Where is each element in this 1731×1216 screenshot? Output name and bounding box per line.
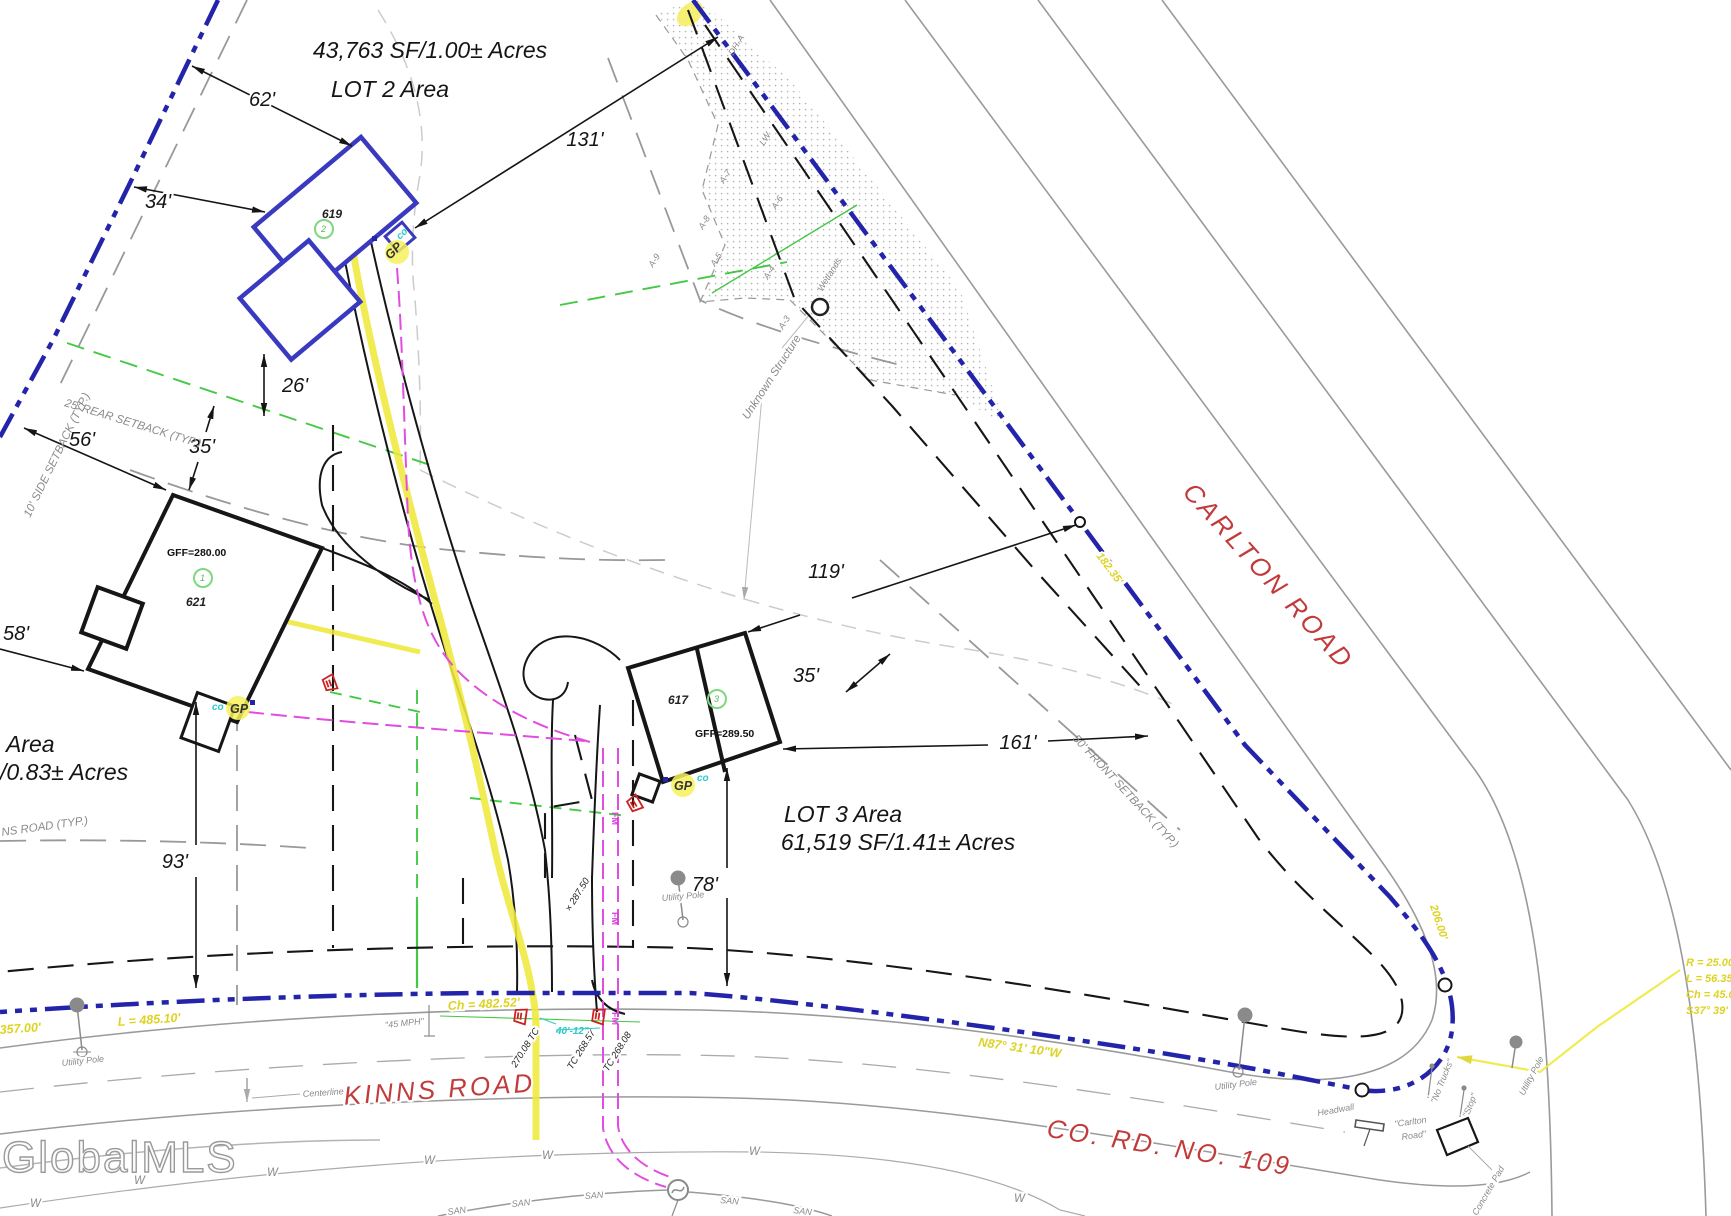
building-619-number: 619 bbox=[322, 207, 342, 221]
fm-double-e bbox=[618, 748, 670, 1177]
dim-161: 161' bbox=[999, 732, 1037, 754]
san-label: SAN bbox=[584, 1190, 604, 1201]
drive-east-edge bbox=[368, 228, 552, 992]
building-621-gff: GFF=280.00 bbox=[167, 547, 226, 559]
utility-pole-label: Utility Pole bbox=[1517, 1055, 1546, 1097]
dim-58-line bbox=[0, 649, 84, 671]
curve-line-2: L = 56.35' bbox=[1686, 973, 1731, 985]
dim-119: 119' bbox=[808, 561, 845, 583]
water-label: W bbox=[749, 1146, 761, 1158]
co-label: co bbox=[697, 773, 709, 784]
fm-label: FM bbox=[610, 1012, 620, 1025]
dim-131: 131' bbox=[566, 129, 604, 151]
watermark: GlobalMLS bbox=[2, 1133, 238, 1182]
curve-line-3: Ch = 45.00' bbox=[1686, 989, 1731, 1001]
drive-617-east bbox=[592, 705, 625, 1014]
survey-357: 357.00' bbox=[0, 1020, 42, 1037]
green-thin-road bbox=[440, 1016, 640, 1022]
site-plan-drawing: FM FM FM 619 2 GFF=280.00 1 621 617 3 GF… bbox=[0, 0, 1731, 1216]
utility-pole-label: Utility Pole bbox=[61, 1054, 104, 1068]
kinns-setback-label: NS ROAD (TYP.) bbox=[1, 815, 89, 839]
culvert-size-label: 40'-12" bbox=[555, 1026, 589, 1037]
dim-26: 26' bbox=[281, 375, 309, 397]
unknown-structure-leader-2 bbox=[744, 396, 762, 600]
survey-L485: L = 485.10' bbox=[117, 1011, 182, 1029]
dim-119-line bbox=[748, 525, 1076, 632]
survey-dist-2: 206.00' bbox=[1427, 902, 1450, 942]
lot2-circle-num: 2 bbox=[320, 224, 326, 234]
wetland-flag: A-3 bbox=[776, 314, 792, 332]
carlton-east-edge bbox=[905, 0, 1552, 1216]
centerline-leader bbox=[252, 1094, 300, 1098]
water-label: W bbox=[542, 1150, 554, 1162]
front-setback-carlton-line bbox=[880, 560, 1180, 830]
monument bbox=[1439, 979, 1452, 992]
utility-pole bbox=[1510, 1036, 1522, 1068]
carlton-shoulder-2 bbox=[1162, 0, 1731, 770]
kinns-setback-line bbox=[0, 840, 310, 848]
building-617-gff: GFF=289.50 bbox=[695, 728, 754, 740]
lot2-name: LOT 2 Area bbox=[331, 76, 449, 102]
survey-bearing: N87° 31' 10"W bbox=[978, 1035, 1064, 1061]
fm-label: FM bbox=[610, 912, 620, 925]
side-setback-label: 10' SIDE SETBACK (TYP.) bbox=[22, 391, 93, 519]
co-label: co bbox=[212, 702, 224, 713]
san-label: SAN bbox=[793, 1205, 813, 1216]
co-rd-109-name: CO. RD. NO. 109 bbox=[1045, 1113, 1294, 1181]
speed-sign bbox=[424, 1005, 435, 1036]
front-setback-label: 50' FRONT SETBACK (TYP.) bbox=[1070, 733, 1181, 851]
service-dot bbox=[250, 700, 255, 705]
carlton-road-sign-label-1: "Carlton bbox=[1394, 1115, 1427, 1129]
culvert-end-section bbox=[322, 674, 337, 692]
water-label: W bbox=[424, 1155, 436, 1167]
dim-93: 93' bbox=[162, 851, 189, 873]
lot-area-labels: 43,763 SF/1.00± Acres LOT 2 Area LOT 3 A… bbox=[0, 37, 1016, 855]
speed-limit-label: "45 MPH" bbox=[384, 1016, 425, 1030]
survey-dist-1: 182.35' bbox=[1094, 551, 1126, 587]
dim-161-line bbox=[783, 736, 1148, 749]
lot3-area: 61,519 SF/1.41± Acres bbox=[781, 829, 1016, 855]
gp-label: GP bbox=[674, 779, 693, 793]
spot-elevation: × 287.50 bbox=[563, 876, 592, 914]
water-label: W bbox=[30, 1198, 42, 1210]
fm-label: FM bbox=[610, 812, 620, 825]
san-label: SAN bbox=[720, 1195, 740, 1207]
dim-62: 62' bbox=[249, 89, 276, 111]
service-dot bbox=[663, 777, 668, 782]
dim-35r: 35' bbox=[793, 665, 820, 687]
san-label: SAN bbox=[447, 1204, 467, 1216]
lot1-name-partial: Area bbox=[4, 731, 55, 757]
carlton-road-sign-label-2: Road" bbox=[1401, 1129, 1428, 1142]
dim-34: 34' bbox=[145, 191, 172, 213]
yellow-leader-curve bbox=[1457, 970, 1680, 1072]
green-dash-3 bbox=[330, 692, 420, 712]
building-617-number: 617 bbox=[668, 693, 689, 707]
unknown-structure-label: Unknown Structure bbox=[740, 333, 803, 422]
gp-label: GP bbox=[230, 702, 249, 716]
utility-structures: Utility Pole Utility Pole Utility Pole U… bbox=[61, 871, 1546, 1216]
lot3-circle-num: 3 bbox=[714, 694, 719, 704]
lot2-area: 43,763 SF/1.00± Acres bbox=[313, 37, 548, 63]
curve-line-1: R = 25.00' bbox=[1686, 957, 1731, 969]
sanitary-line-west bbox=[438, 1190, 668, 1216]
dim-35r-line bbox=[846, 654, 890, 692]
utility-pole-label: Utility Pole bbox=[661, 889, 704, 903]
monument bbox=[1075, 517, 1085, 527]
site-plan-sheet: FM FM FM 619 2 GFF=280.00 1 621 617 3 GF… bbox=[0, 0, 1731, 1216]
buildings: 619 2 GFF=280.00 1 621 617 3 GFF=289.50 bbox=[81, 137, 780, 802]
curve-data-block: R = 25.00' L = 56.35' Ch = 45.00' S37° 3… bbox=[1686, 957, 1731, 1017]
dim-58: 58' bbox=[3, 623, 30, 645]
centerline-label: Centerline bbox=[302, 1086, 344, 1099]
headwall-label: Headwall bbox=[1317, 1102, 1356, 1118]
service-dot bbox=[372, 236, 377, 241]
force-main bbox=[248, 268, 670, 1187]
san-label: SAN bbox=[511, 1197, 531, 1209]
drive-617-loop bbox=[524, 636, 620, 699]
utility-pole bbox=[70, 998, 91, 1057]
monument bbox=[1356, 1084, 1369, 1097]
lot1-circle-num: 1 bbox=[200, 573, 205, 583]
building-617-main bbox=[628, 633, 780, 782]
unknown-structure-circle bbox=[812, 299, 828, 315]
utility-pole-label: Utility Pole bbox=[1214, 1077, 1257, 1092]
drive-west-edge bbox=[333, 197, 517, 992]
wetland-flag: A-9 bbox=[646, 252, 662, 270]
carlton-shoulder-1 bbox=[1038, 0, 1706, 1216]
lot1-area-partial: /0.83± Acres bbox=[0, 759, 129, 785]
boundary-left bbox=[0, 0, 218, 437]
wetland-flag: A-8 bbox=[696, 214, 712, 232]
wetland-area bbox=[656, 0, 1005, 600]
curve-line-4: S37° 39' E bbox=[1686, 1005, 1731, 1017]
building-617-notch bbox=[632, 774, 660, 802]
building-621-number: 621 bbox=[186, 595, 206, 609]
kinns-road-name: KINNS ROAD bbox=[343, 1067, 536, 1110]
carlton-road-name: CARLTON ROAD bbox=[1177, 477, 1360, 676]
culvert-end-section bbox=[514, 1008, 527, 1024]
kinns-centerline bbox=[0, 1055, 1345, 1132]
water-label: W bbox=[1014, 1193, 1026, 1205]
concrete-pad-label: Concrete Pad bbox=[1470, 1163, 1507, 1216]
drive-617-west bbox=[552, 700, 553, 878]
sanitary-manhole bbox=[668, 1180, 688, 1216]
concrete-pad-leader bbox=[1468, 1146, 1492, 1170]
building-621 bbox=[81, 495, 322, 751]
water-label: W bbox=[267, 1167, 279, 1179]
lot3-name: LOT 3 Area bbox=[784, 801, 902, 827]
headwall bbox=[1355, 1120, 1384, 1146]
